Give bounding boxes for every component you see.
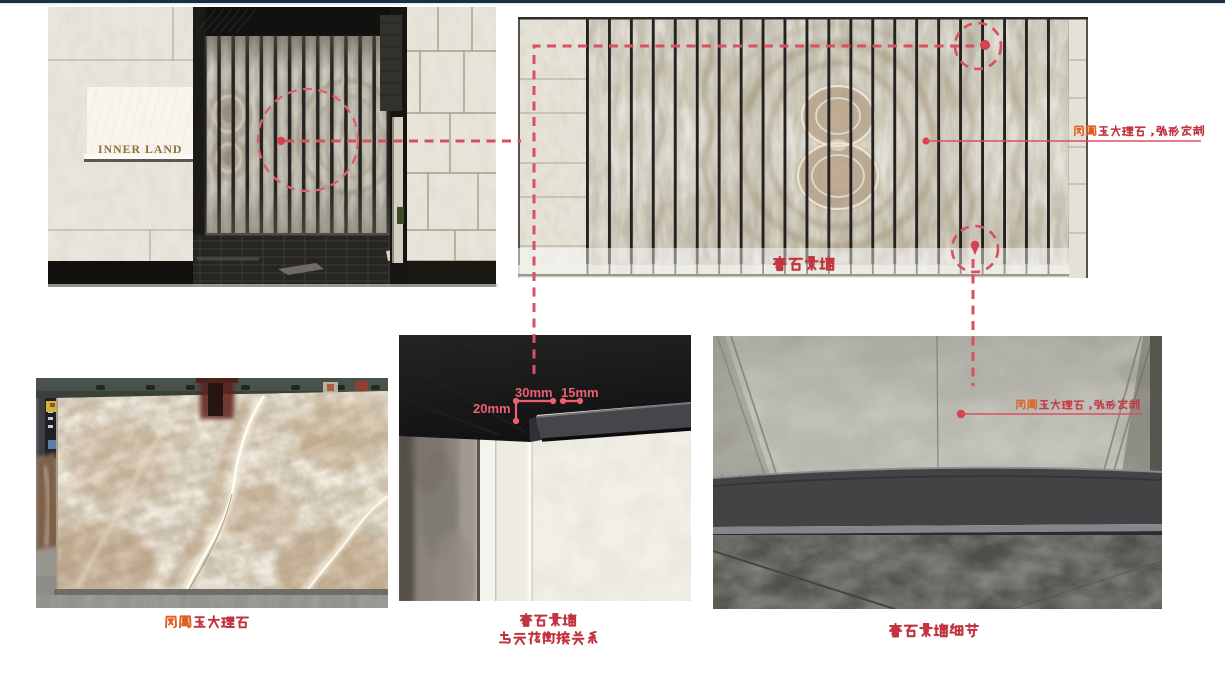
svg-text:INNER LAND: INNER LAND (98, 142, 182, 156)
